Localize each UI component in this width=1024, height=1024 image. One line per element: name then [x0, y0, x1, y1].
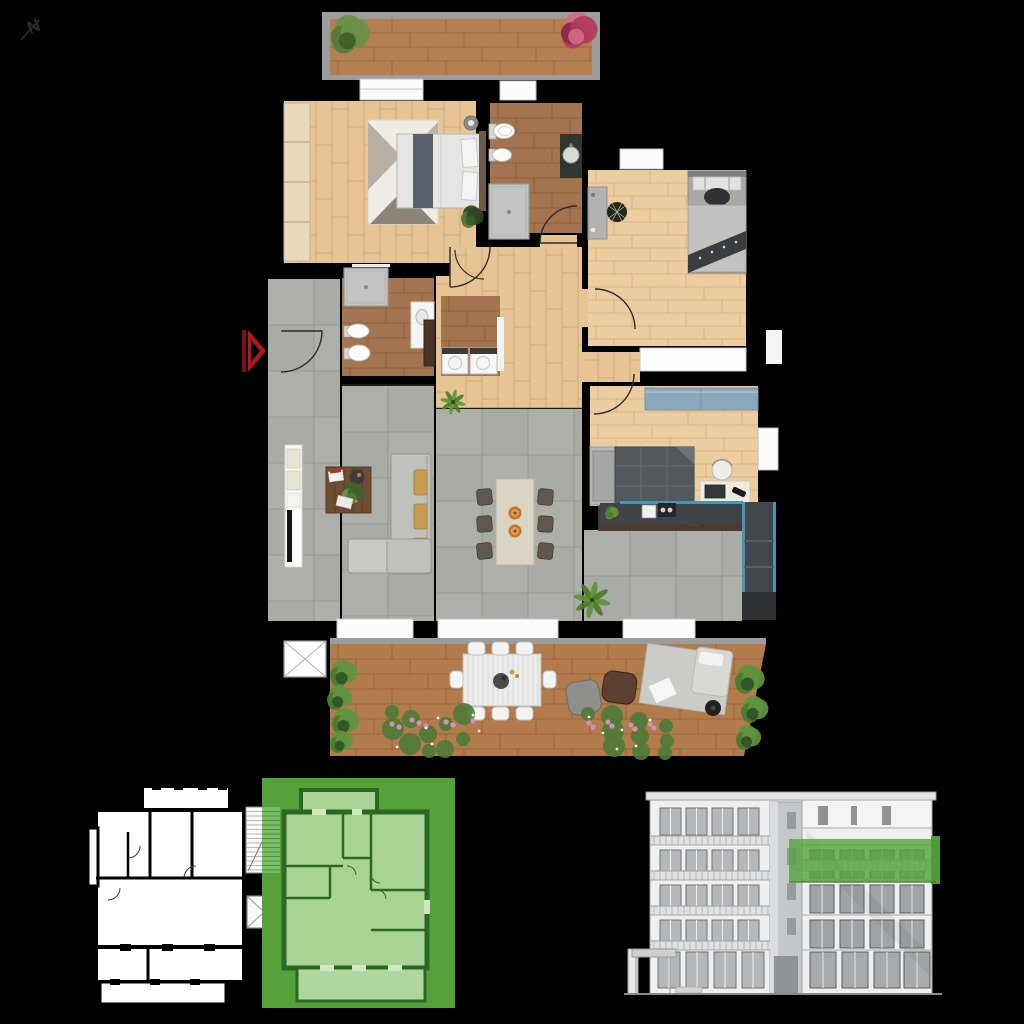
outdoor-chair — [468, 642, 485, 655]
terrace — [284, 638, 768, 760]
terrace-door-3 — [623, 619, 695, 640]
bidet — [493, 149, 512, 162]
duvet-dark — [615, 447, 694, 505]
round-cushion — [704, 188, 730, 206]
dining-chair — [537, 542, 554, 559]
bathroom1-window — [500, 81, 536, 100]
balcony — [322, 12, 600, 80]
balcony-railing — [651, 836, 770, 845]
outdoor-chair — [492, 707, 509, 720]
sofa-cushion — [414, 470, 427, 495]
balcony-railing — [651, 906, 770, 915]
entrance-door — [774, 956, 798, 994]
neighbor-unit-body — [96, 810, 244, 982]
terrace-door-1 — [337, 619, 413, 640]
bedroom2-low-window — [640, 348, 746, 371]
dining-chair — [476, 515, 492, 532]
pouf-brown — [601, 670, 638, 705]
outdoor-chair — [450, 671, 463, 688]
dining-chair — [537, 488, 553, 505]
tv — [287, 510, 292, 562]
outdoor-chair — [516, 642, 533, 655]
compass: N — [21, 15, 43, 40]
entry-canopy — [632, 949, 676, 957]
floor-plan-canvas: N — [0, 0, 1024, 1024]
dining-chair — [537, 516, 553, 533]
study-window — [758, 428, 778, 470]
desk-chair — [712, 460, 732, 480]
dining-table — [496, 479, 534, 565]
wood-floor — [582, 352, 640, 382]
pillow — [593, 451, 615, 501]
kitchen-counter — [620, 502, 743, 524]
green-floor-highlight — [789, 839, 936, 882]
dining-chair — [476, 488, 492, 505]
floor-plan-page: N — [0, 0, 1024, 1024]
pillow — [461, 172, 478, 201]
lightwell — [284, 641, 326, 677]
bed-runner — [413, 134, 433, 208]
dining-chair — [476, 542, 493, 559]
kitchen-sink — [642, 505, 656, 518]
terrace-door-2 — [438, 619, 558, 640]
bedroom2-window — [620, 149, 663, 169]
mini-terrace — [297, 968, 425, 1001]
outdoor-chair — [516, 707, 533, 720]
glass-partition — [352, 264, 390, 267]
terrace-edge — [330, 638, 766, 644]
outdoor-chair — [492, 642, 509, 655]
tile-floor — [584, 530, 742, 621]
furniture-laundry — [442, 348, 497, 374]
sink — [563, 147, 579, 163]
outdoor-chair — [543, 671, 556, 688]
key-plan — [88, 778, 455, 1008]
entrance-arrow — [242, 330, 266, 372]
pillow — [461, 138, 478, 167]
headboard — [479, 131, 486, 211]
toilet — [348, 345, 370, 361]
tray — [350, 470, 365, 485]
laptop — [705, 485, 725, 498]
tall-cabinet — [424, 320, 435, 366]
bowl — [493, 673, 509, 689]
elevation — [624, 792, 942, 994]
facade-notch — [766, 330, 782, 364]
bidet — [347, 324, 369, 338]
balcony-deck — [330, 19, 592, 75]
laundry-opening — [497, 317, 504, 371]
balcony-railing — [651, 871, 770, 880]
sofa-cushion — [414, 504, 427, 529]
roof-band — [646, 792, 936, 800]
